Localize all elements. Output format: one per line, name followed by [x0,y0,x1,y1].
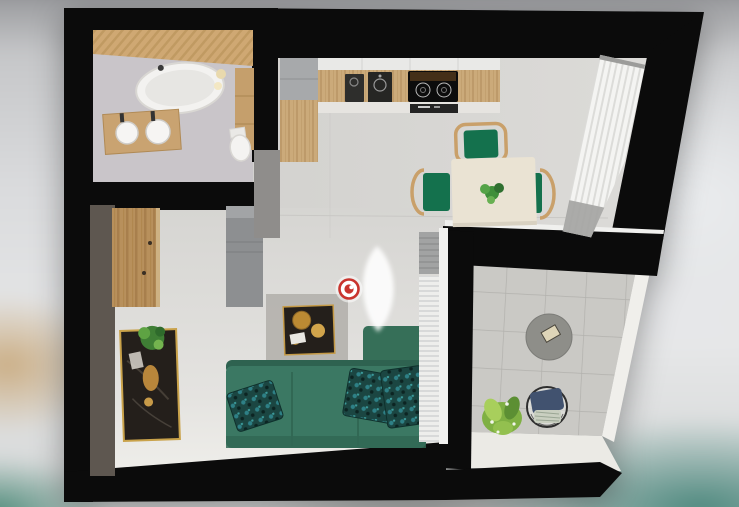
oven-front [410,104,458,113]
cooktop-reflection [410,72,456,81]
faucet [151,111,156,121]
wardrobe-edge [156,208,160,307]
tall-cabinet-lower [280,100,318,162]
window-sill-strip [439,228,448,444]
window-curtain [419,276,439,442]
kitchen-sink [345,72,392,103]
sink-faucet [379,75,382,78]
gold-plate [292,311,311,330]
radiator [419,232,439,274]
sink-basin [145,119,171,145]
wardrobe-handle [148,241,152,245]
wall-light [216,69,226,79]
striped-seat [534,410,561,423]
vanity-two-sinks [103,109,182,154]
kitchen-side-wall [254,150,280,238]
counter-front [318,102,500,113]
wire-chair [527,387,567,427]
wardrobe [112,208,160,307]
coffee-table [283,305,335,355]
wardrobe-handle [142,271,146,275]
floorplan-scene [0,0,739,507]
cabinet-fronts [318,58,500,72]
sofa-front-edge [226,436,426,448]
induction-cooktop [408,71,458,102]
wall-light [214,82,222,90]
panorama-viewpoint-marker[interactable] [336,276,363,303]
balcony-table [526,314,572,360]
sink-basin [115,121,138,144]
faucet [120,113,125,122]
console-table [120,325,180,441]
